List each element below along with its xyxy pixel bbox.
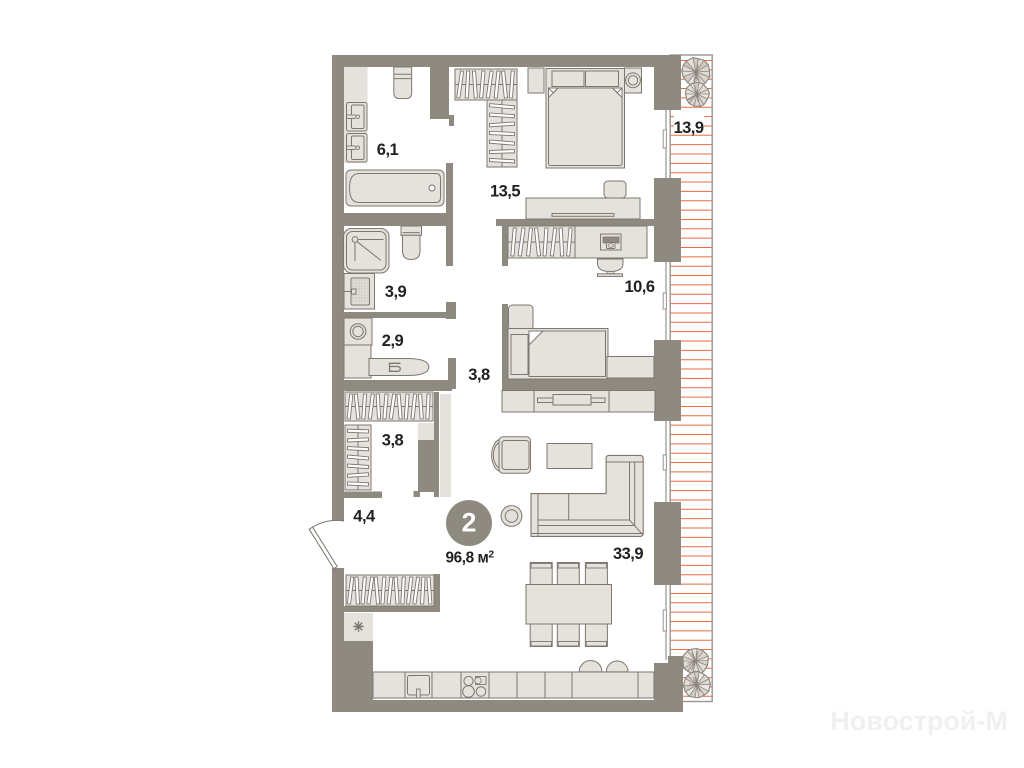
svg-text:10,6: 10,6 (624, 278, 654, 296)
svg-text:6,1: 6,1 (377, 141, 399, 159)
svg-text:13,9: 13,9 (673, 119, 703, 137)
svg-text:3,8: 3,8 (382, 432, 404, 450)
svg-text:Новострой-М: Новострой-М (830, 706, 1008, 736)
svg-text:96,8 м2: 96,8 м2 (446, 550, 495, 567)
svg-text:3,9: 3,9 (385, 283, 407, 301)
svg-text:2,9: 2,9 (382, 332, 404, 350)
svg-text:4,4: 4,4 (353, 508, 376, 526)
svg-text:13,5: 13,5 (490, 183, 520, 201)
svg-text:3,8: 3,8 (468, 366, 490, 384)
svg-text:33,9: 33,9 (613, 545, 643, 563)
svg-text:2: 2 (462, 508, 477, 538)
